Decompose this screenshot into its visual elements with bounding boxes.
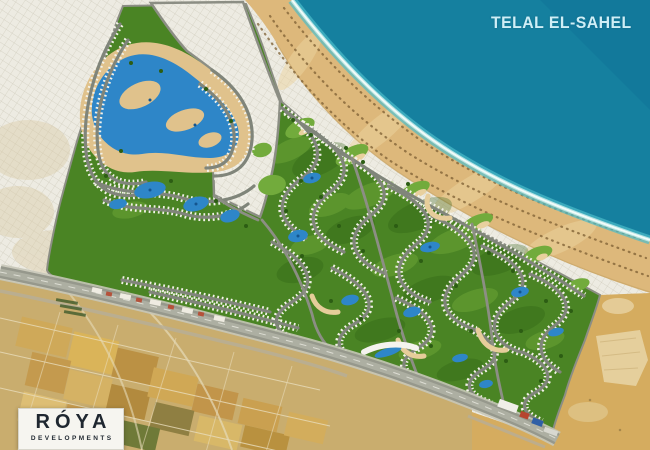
masterplan-map-image	[0, 0, 650, 450]
project-title: TELAL EL-SAHEL	[491, 13, 632, 33]
masterplan-aerial-view: TELAL EL-SAHEL RÓYA DEVELOPMENTS	[0, 0, 650, 450]
developer-brand-name: RÓYA	[31, 412, 112, 433]
developer-logo-card: RÓYA DEVELOPMENTS	[18, 408, 124, 450]
developer-brand-subtitle: DEVELOPMENTS	[28, 435, 113, 442]
